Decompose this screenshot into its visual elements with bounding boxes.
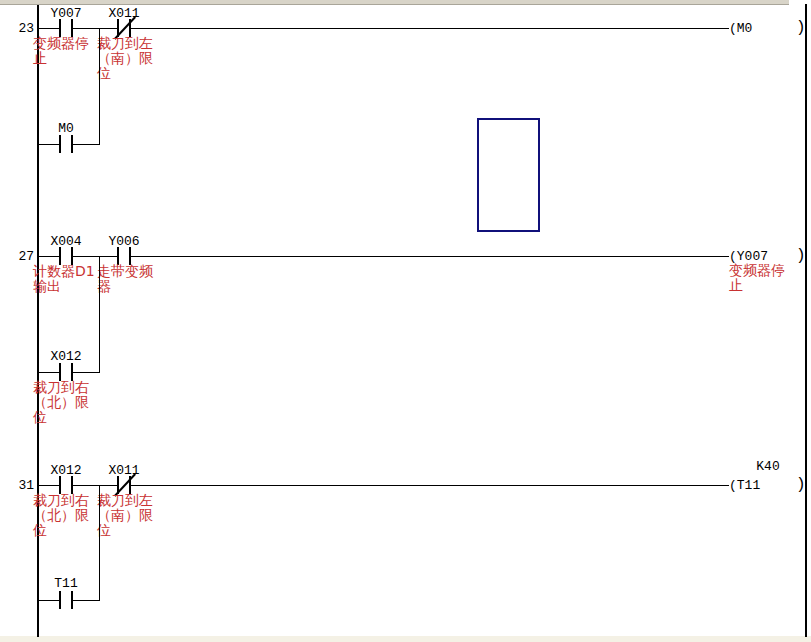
device-comment: 裁刀到右（北）限位 [33, 380, 95, 425]
timer-operand: K40 [744, 459, 792, 474]
wire-segment [73, 28, 117, 29]
wire-segment [73, 256, 117, 257]
contact-bar [59, 591, 61, 609]
step-number: 27 [10, 249, 34, 263]
window-frame-top [0, 0, 789, 5]
device-label: Y007 [44, 6, 88, 20]
edit-cursor-box[interactable] [477, 118, 540, 232]
device-comment: 计数器D1输出 [33, 264, 95, 294]
device-comment: 走带变频器 [97, 264, 159, 294]
coil-device-label: M0 [737, 21, 753, 36]
branch-wire-vertical [99, 485, 100, 601]
device-comment: 裁刀到右（北）限位 [33, 493, 95, 538]
device-comment: 变频器停止 [33, 36, 95, 66]
wire-segment [73, 485, 117, 486]
branch-wire-vertical [99, 256, 100, 373]
wire-segment [37, 256, 59, 257]
contact-bar [71, 591, 73, 609]
wire-segment [37, 28, 59, 29]
coil-comment: 变频器停止 [729, 263, 791, 293]
device-label: X011 [102, 6, 146, 20]
wire-segment [37, 485, 59, 486]
wire-segment [131, 28, 729, 29]
contact-bar [59, 135, 61, 153]
step-number: 23 [10, 21, 34, 35]
coil-device-label: T11 [737, 478, 760, 493]
coil-close-paren [796, 19, 806, 37]
device-label: X011 [102, 463, 146, 477]
branch-wire-vertical [99, 28, 100, 145]
wire-segment [37, 600, 59, 601]
device-label: Y006 [102, 234, 146, 248]
wire-segment [73, 600, 99, 601]
contact-bar [71, 135, 73, 153]
coil-close-paren [796, 247, 806, 265]
device-comment: 裁刀到左（南）限位 [97, 493, 159, 538]
wire-segment [131, 485, 729, 486]
wire-segment [37, 372, 59, 373]
device-label: X012 [44, 463, 88, 477]
device-label: T11 [44, 576, 88, 590]
window-frame-bottom [0, 636, 811, 642]
wire-segment [73, 144, 99, 145]
device-label: X012 [44, 349, 88, 363]
wire-segment [73, 372, 99, 373]
device-label: M0 [44, 121, 88, 135]
power-rail-right [805, 4, 807, 637]
wire-segment [37, 144, 59, 145]
device-comment: 裁刀到左（南）限位 [97, 36, 159, 81]
power-rail-left [37, 5, 39, 637]
step-number: 31 [10, 478, 34, 492]
coil-close-paren [796, 476, 806, 494]
device-label: X004 [44, 234, 88, 248]
wire-segment [131, 256, 729, 257]
ladder-editor-canvas[interactable]: 23 Y007 变频器停止 X011 裁刀到左（南）限位 M0 [0, 0, 811, 642]
